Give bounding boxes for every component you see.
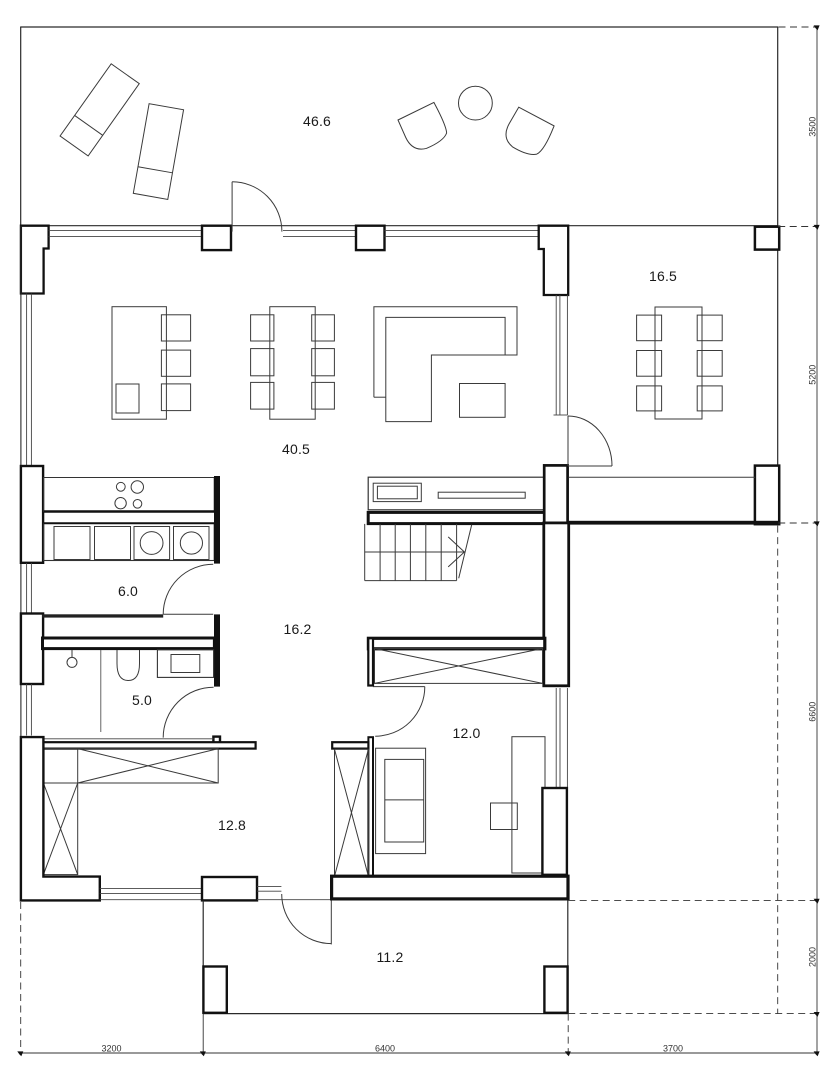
svg-text:5.0: 5.0 [132, 692, 152, 708]
svg-text:3500: 3500 [808, 117, 818, 137]
svg-text:6600: 6600 [808, 702, 818, 722]
svg-text:12.8: 12.8 [218, 817, 246, 833]
svg-text:6400: 6400 [375, 1043, 395, 1053]
svg-text:5200: 5200 [808, 365, 818, 385]
svg-text:3700: 3700 [663, 1043, 683, 1053]
svg-text:3200: 3200 [101, 1043, 121, 1053]
svg-text:46.6: 46.6 [303, 113, 331, 129]
svg-text:2000: 2000 [808, 947, 818, 967]
svg-text:16.2: 16.2 [283, 621, 311, 637]
svg-text:12.0: 12.0 [452, 725, 480, 741]
svg-text:11.2: 11.2 [376, 949, 403, 965]
svg-text:6.0: 6.0 [118, 583, 138, 599]
svg-text:16.5: 16.5 [649, 268, 677, 284]
svg-text:40.5: 40.5 [282, 441, 310, 457]
